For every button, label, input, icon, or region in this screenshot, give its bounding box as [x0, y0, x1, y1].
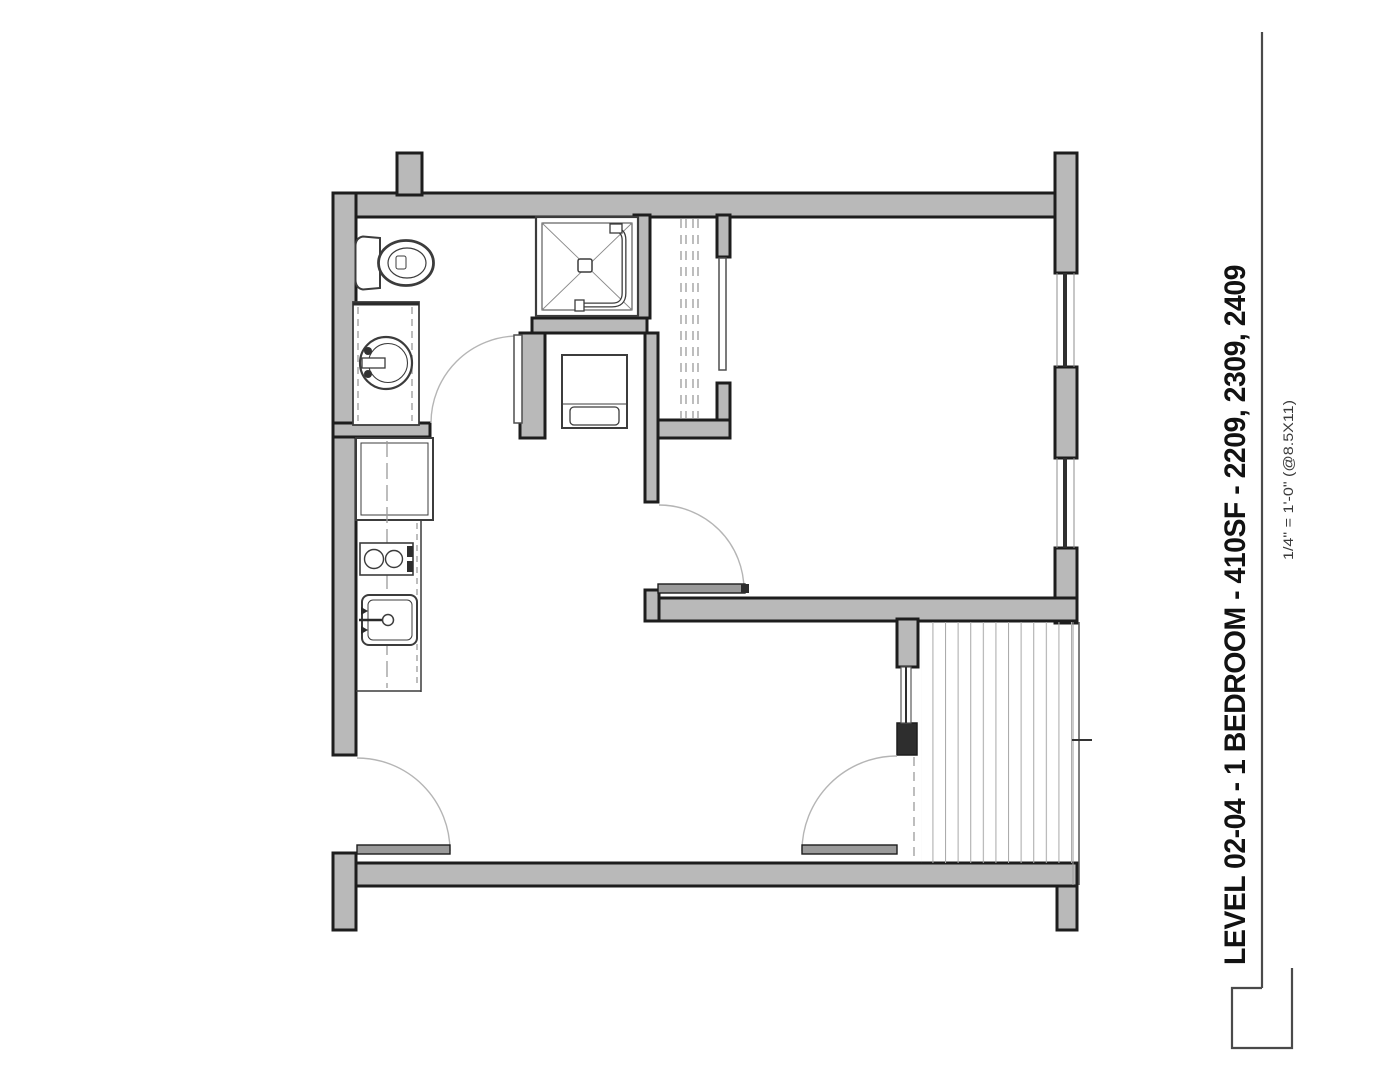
bedroom-door	[658, 505, 749, 593]
bathroom-sink-icon	[360, 337, 412, 389]
balcony-sidelite-window	[901, 667, 911, 723]
wall-bedroom-south	[652, 598, 1077, 621]
kitchen-fixtures	[356, 438, 433, 692]
balcony-door-mullion	[897, 723, 917, 755]
balcony-door-leaf	[802, 845, 897, 854]
closet-south-wall	[658, 420, 730, 438]
cooktop-icon	[360, 543, 413, 575]
view-title: LEVEL 02-04 - 1 BEDROOM - 410SF - 2209, …	[1219, 265, 1252, 965]
shower-icon	[536, 217, 638, 316]
closet-rod-dashes	[681, 219, 698, 418]
entry-door	[357, 758, 450, 854]
shower-south-wall	[532, 318, 647, 333]
shower-drain-icon	[578, 259, 592, 272]
closet-east-stub-top	[717, 215, 730, 257]
balcony-deck-hatch	[921, 622, 1072, 863]
view-title-block: LEVEL 02-04 - 1 BEDROOM - 410SF - 2209, …	[1219, 32, 1296, 1048]
bathroom-vanity	[353, 302, 419, 425]
bathroom-door-jamb-wall	[520, 333, 545, 438]
wall-north	[333, 193, 1077, 217]
bedroom-door-leaf-tip	[741, 584, 749, 593]
entry-pier	[333, 853, 356, 930]
toilet-icon	[356, 237, 434, 290]
wall-stub-north-left	[397, 153, 422, 195]
closet-door-leaf	[719, 258, 726, 370]
wall-east-mid	[1055, 367, 1077, 458]
balcony-door	[802, 756, 897, 854]
wall-west	[333, 193, 356, 755]
balcony-door-swing-arc	[802, 756, 897, 851]
closet-east-stub-bottom	[717, 383, 730, 420]
washer-icon	[562, 355, 627, 428]
closet-west-wall	[645, 333, 658, 502]
wall-south-east-stub	[1057, 886, 1077, 930]
wall-south	[356, 863, 1077, 886]
entry-door-leaf	[357, 845, 450, 854]
entry-door-swing-arc	[357, 758, 450, 851]
window-1	[1057, 273, 1074, 367]
floor-plan-drawing: LEVEL 02-04 - 1 BEDROOM - 410SF - 2209, …	[0, 0, 1398, 1080]
view-scale-note: 1/4" = 1'-0" (@8.5X11)	[1280, 400, 1296, 560]
balcony	[901, 622, 1092, 885]
closet-door	[719, 258, 726, 370]
window-2	[1057, 458, 1074, 548]
floor-plan-sheet: LEVEL 02-04 - 1 BEDROOM - 410SF - 2209, …	[0, 0, 1398, 1080]
refrigerator-icon	[356, 438, 433, 520]
doors	[357, 258, 897, 854]
balcony-door-jamb-wall	[897, 619, 918, 667]
bathroom-door-swing-arc	[431, 336, 518, 423]
bedroom-door-swing-arc	[659, 505, 744, 590]
bedroom-door-leaf	[658, 584, 745, 593]
wall-east-upper	[1055, 153, 1077, 273]
bathroom-door-leaf	[514, 335, 522, 423]
bathroom-door	[431, 335, 522, 423]
wall-bedroom-south-step	[645, 590, 659, 621]
kitchen-sink-icon	[359, 595, 417, 645]
